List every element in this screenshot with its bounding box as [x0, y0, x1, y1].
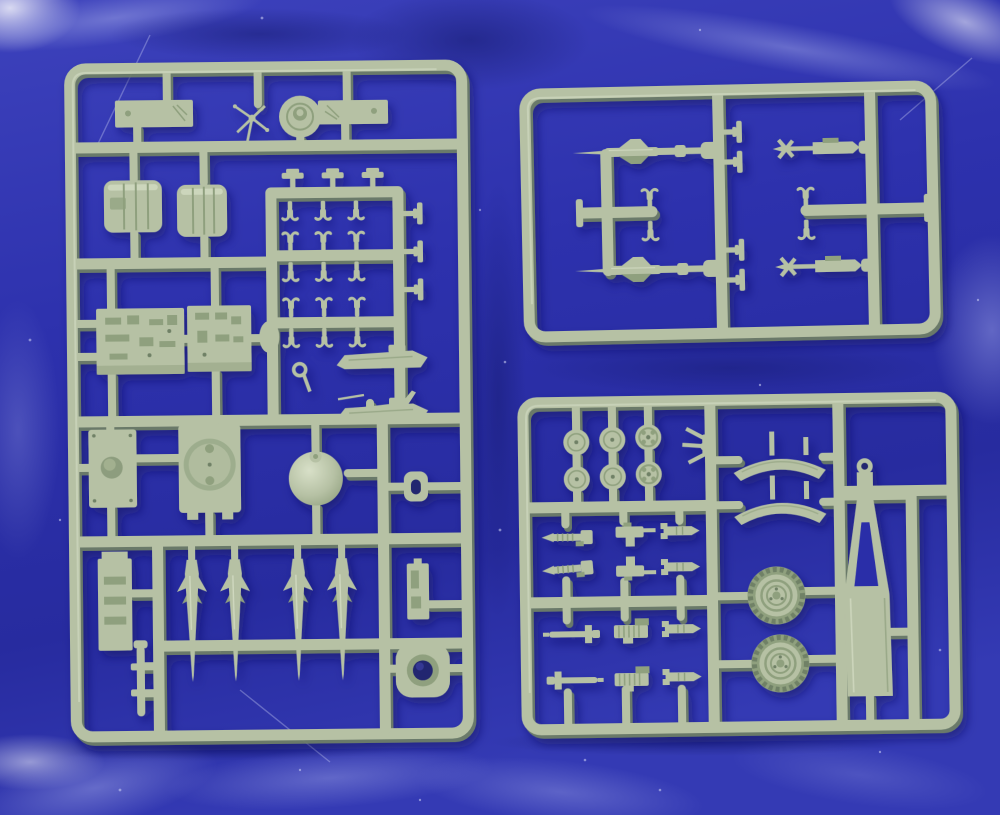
latch-bracket-part — [407, 558, 430, 619]
hatch-plate-part — [88, 429, 137, 507]
ring-plate-part — [178, 417, 241, 520]
storage-drum-part — [104, 180, 163, 233]
runner-end-cap — [576, 199, 584, 227]
ladder-bracket-part — [98, 551, 133, 650]
base-plate-part — [396, 643, 451, 698]
shackle-ring-part — [404, 471, 428, 501]
chassis-plate-part — [187, 305, 252, 372]
photo-canvas — [0, 0, 1000, 815]
mounting-bar-part — [318, 100, 388, 125]
runner-end-cap — [924, 194, 932, 222]
photo-of-model-kit-sprues: Photograph of three sage-green injection… — [0, 0, 1000, 815]
storage-drum-part — [177, 184, 228, 237]
mounting-bar-part — [115, 100, 193, 128]
chassis-plate-part — [96, 308, 185, 375]
